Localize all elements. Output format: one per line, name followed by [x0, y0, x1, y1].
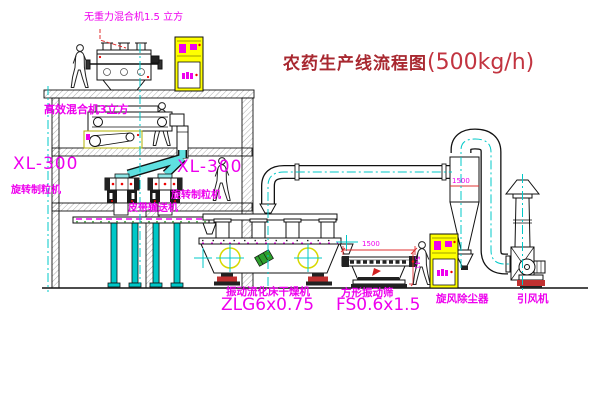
label-granulator-right-name: 旋转制粒机 [171, 191, 221, 201]
label-gravity-free-mixer: 无重力混合机1.5 立方 [84, 13, 183, 23]
label-screen-model: FS0.6x1.5 [336, 297, 420, 314]
dimension-screen-height: 541 [413, 256, 420, 269]
fluid-bed-dryer [199, 214, 341, 286]
cad-drawing-canvas: 农药生产线流程图(500kg/h) 无重力混合机1.5 立方 高效混合机3立方 … [0, 0, 600, 403]
drawing-title: 农药生产线流程图(500kg/h) [283, 49, 534, 75]
discharge-chute [114, 203, 128, 215]
label-granulator-left-model: XL-300 [13, 156, 78, 173]
label-granulator-left-name: 旋转制粒机 [11, 186, 61, 196]
dimension-screen-length: 1500 [362, 241, 380, 248]
title-text: 农药生产线流程图 [283, 54, 427, 74]
title-capacity: (500kg/h) [427, 50, 534, 75]
label-belt-conveyor: 皮带输送机 [128, 204, 178, 214]
granulator-left [105, 174, 139, 203]
label-granulator-right-model: XL-300 [177, 159, 242, 176]
dimension-cyclone: 1500 [452, 178, 470, 185]
belt-conveyor [73, 217, 216, 287]
control-cabinet-upper [175, 37, 203, 91]
label-fan: 引风机 [517, 294, 549, 305]
label-dryer-model: ZLG6x0.75 [221, 297, 314, 314]
label-high-efficiency-mixer: 高效混合机3立方 [44, 104, 129, 115]
exhaust-duct [260, 164, 451, 213]
gravity-free-mixer [86, 43, 162, 90]
control-cabinet-lower [430, 234, 458, 288]
label-cyclone: 旋风除尘器 [436, 294, 489, 305]
